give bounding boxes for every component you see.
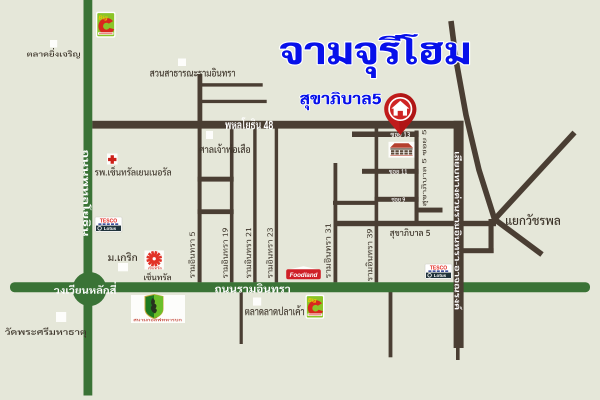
svg-text:Lotus: Lotus — [104, 226, 117, 231]
svg-text:Big: Big — [99, 16, 109, 22]
svg-text:Foodland: Foodland — [290, 272, 318, 279]
svg-text:Big: Big — [308, 298, 317, 304]
svg-text:Lotus: Lotus — [434, 273, 447, 278]
